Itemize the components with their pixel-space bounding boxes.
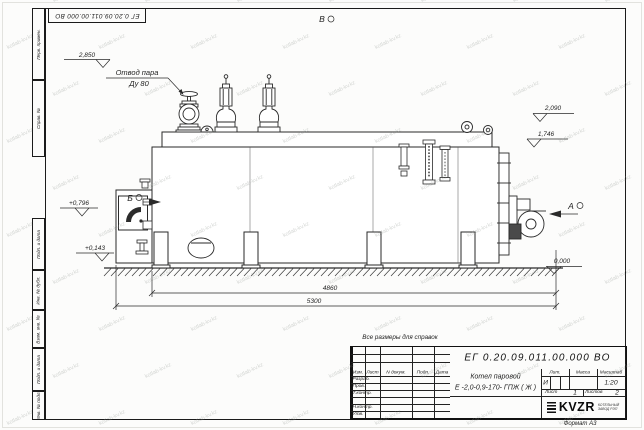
frame-column-podp-data-1: Подп. и дата: [32, 218, 45, 270]
kvzr-logo-text: KVZR: [559, 400, 595, 414]
grid-line: [351, 418, 625, 420]
manufacturer-logo: KVZR КОТЕЛЬНЫЙ ЗАВОД РЭП: [541, 396, 625, 418]
grid-line: [583, 389, 584, 396]
grid-line: [351, 383, 450, 384]
mass-header: Масса: [576, 370, 590, 375]
frame-column-inv-dubl: Инв. № дубл.: [32, 270, 45, 310]
sheet-label: Лист: [545, 390, 557, 395]
grid-line: [351, 397, 450, 398]
row-prov: Пров.: [353, 384, 366, 389]
grid-line: [351, 411, 450, 412]
frame-column-label: Подп. и дата: [36, 355, 41, 384]
product-name-line1: Котел паровой: [470, 374, 520, 381]
sheets-label: Листов: [585, 390, 602, 395]
drawing-sheet: Отвод пара Ду 80 2,850 2,090 1,746 +0,79…: [0, 0, 644, 430]
row-tkontr: Т.контр.: [353, 391, 372, 396]
title-block: Изм. Лист N докум. Подп. Дата Разраб. Пр…: [350, 346, 627, 420]
frame-column-label: Перв. примен.: [36, 29, 41, 60]
col-header-ndoc: N докум.: [386, 370, 405, 375]
scale-value: 1:20: [604, 379, 617, 386]
product-name-line2: Е -2,0-0,9-170- ГПЖ ( Ж ): [455, 385, 536, 392]
frame-column-podp-data-2: Подп. и дата: [32, 348, 45, 391]
doc-number: ЕГ 0.20.09.011.00.000 ВО: [464, 353, 610, 364]
grid-line: [550, 376, 551, 389]
frame-column-perv-primen: Перв. примен.: [32, 8, 45, 80]
col-header-list: Лист: [366, 370, 378, 375]
grid-line: [541, 376, 625, 377]
grid-line: [351, 362, 450, 363]
top-left-doc-number-text: ЕГ 0.20.09.011.00.000 ВО: [55, 12, 140, 19]
top-left-doc-number: ЕГ 0.20.09.011.00.000 ВО: [48, 8, 146, 23]
frame-column-label: Инв. № дубл.: [36, 276, 41, 304]
frame-column-inv-podl: Инв. № подл.: [32, 391, 45, 420]
frame-column-sprav-no: Справ. №: [32, 80, 45, 157]
sheet-value: 1: [573, 389, 577, 396]
row-razrab: Разраб.: [353, 377, 370, 382]
kvzr-logo-subtext: КОТЕЛЬНЫЙ ЗАВОД РЭП: [598, 403, 619, 412]
grid-line: [560, 376, 561, 389]
frame-column-vzam-inv: Взам. инв. №: [32, 310, 45, 348]
reference-note: Все размеры для справок: [330, 334, 470, 341]
scale-header: Масштаб: [600, 370, 622, 375]
row-utv: Утв.: [353, 412, 364, 417]
frame-column-label: Подп. и дата: [36, 230, 41, 259]
kvzr-logo-sub2: ЗАВОД РЭП: [598, 407, 619, 411]
frame-column-label: Справ. №: [36, 108, 41, 129]
grid-line: [351, 354, 450, 355]
col-header-podp: Подп.: [417, 370, 430, 375]
col-header-data: Дата: [436, 370, 449, 375]
format-label: Формат А3: [538, 421, 622, 427]
grid-line: [597, 369, 598, 389]
row-nkontr: Н.контр.: [353, 405, 373, 410]
col-header-izm: Изм.: [353, 370, 363, 375]
grid-line: [569, 369, 570, 389]
frame-column-label: Инв. № подл.: [36, 391, 41, 420]
lit-value: И: [543, 379, 548, 386]
frame-column-label: Взам. инв. №: [36, 315, 41, 343]
kvzr-logo-icon: [547, 402, 556, 413]
sheets-value: 2: [615, 389, 619, 396]
lit-header: Лит.: [549, 370, 560, 375]
